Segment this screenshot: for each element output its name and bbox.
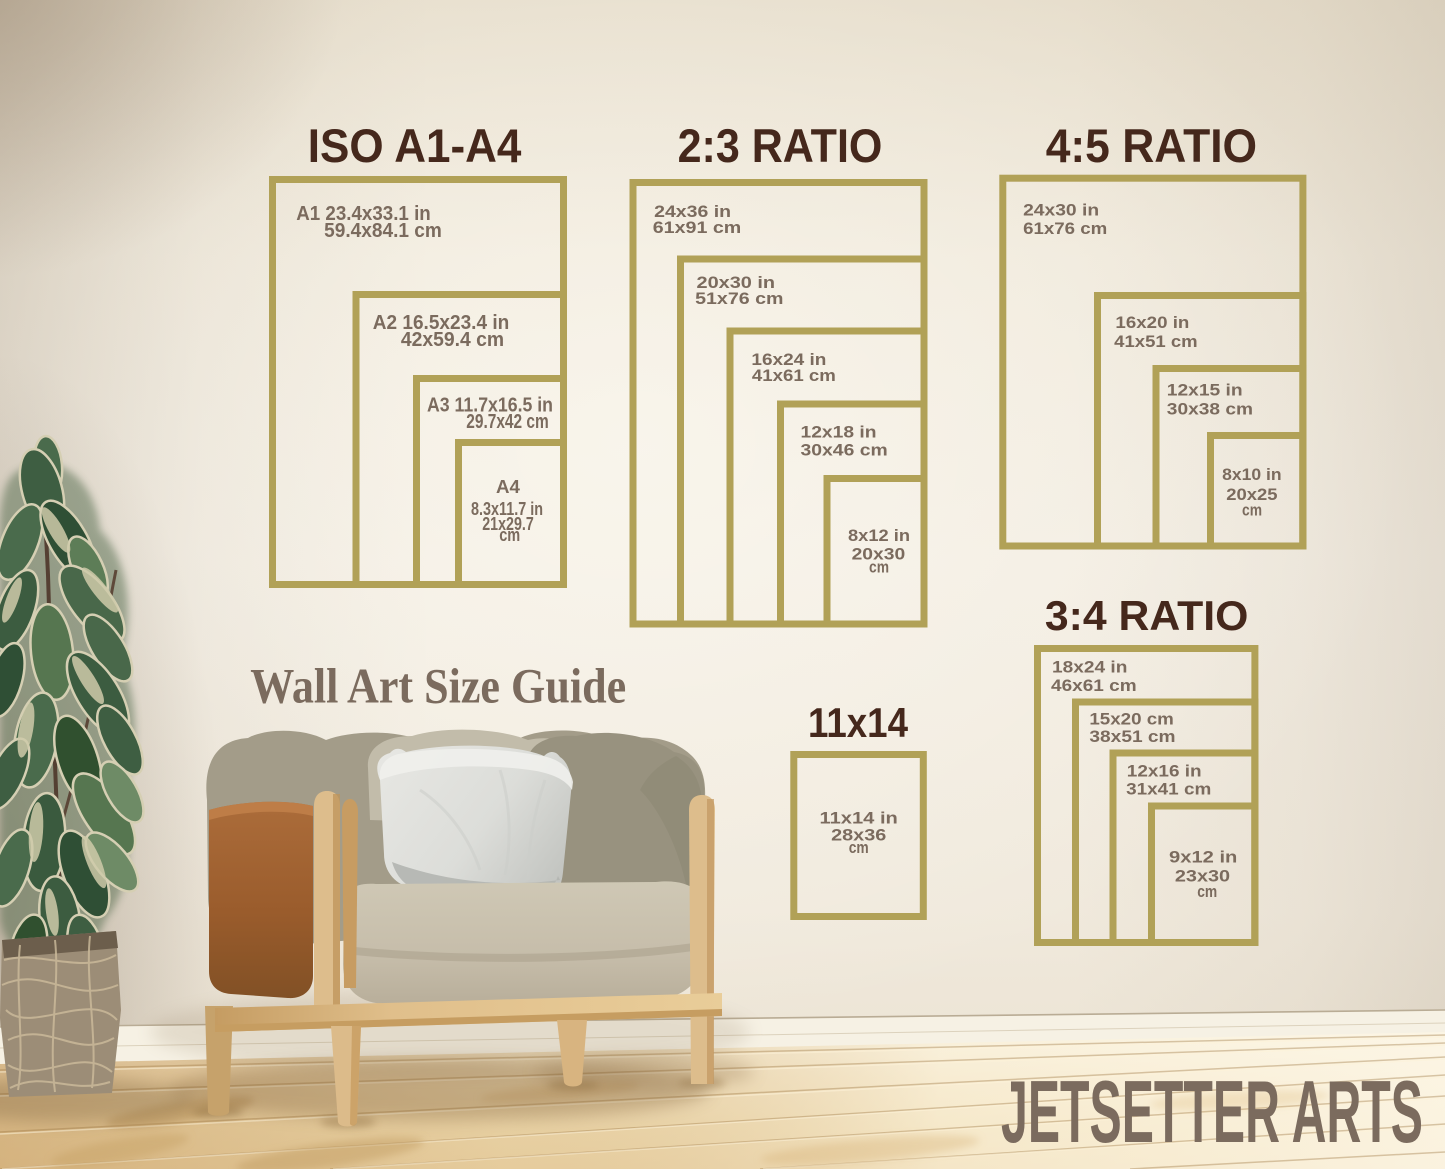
svg-text:cm: cm [1242,500,1262,519]
svg-text:3:4 RATIO: 3:4 RATIO [1045,592,1249,639]
svg-text:51x76 cm: 51x76 cm [695,289,783,308]
svg-text:cm: cm [499,525,520,545]
svg-text:59.4x84.1 cm: 59.4x84.1 cm [324,220,442,242]
svg-text:JETSETTER ARTS: JETSETTER ARTS [1001,1062,1423,1161]
svg-text:4:5 RATIO: 4:5 RATIO [1046,119,1257,172]
svg-text:61x91 cm: 61x91 cm [653,218,742,237]
svg-text:61x76 cm: 61x76 cm [1023,219,1107,238]
svg-text:29.7x42 cm: 29.7x42 cm [466,411,549,433]
svg-text:31x41 cm: 31x41 cm [1126,779,1211,798]
svg-text:41x51 cm: 41x51 cm [1114,332,1197,351]
svg-text:8x12 in: 8x12 in [848,526,910,545]
svg-text:9x12 in: 9x12 in [1169,848,1237,867]
svg-text:30x38 cm: 30x38 cm [1167,400,1253,419]
svg-text:42x59.4 cm: 42x59.4 cm [401,329,504,351]
svg-text:15x20 cm: 15x20 cm [1089,710,1174,729]
svg-text:cm: cm [1197,882,1217,901]
svg-text:8x10 in: 8x10 in [1222,465,1282,484]
svg-text:46x61 cm: 46x61 cm [1051,676,1137,695]
svg-text:24x30 in: 24x30 in [1023,201,1099,220]
svg-text:11x14: 11x14 [808,699,909,746]
svg-text:ISO A1-A4: ISO A1-A4 [308,119,522,172]
svg-text:18x24 in: 18x24 in [1052,658,1127,677]
svg-text:41x61 cm: 41x61 cm [752,366,836,385]
svg-text:2:3 RATIO: 2:3 RATIO [678,119,883,172]
svg-text:12x18 in: 12x18 in [801,423,877,442]
svg-text:30x46 cm: 30x46 cm [801,441,888,460]
svg-text:12x15 in: 12x15 in [1167,381,1243,400]
svg-text:Wall Art Size Guide: Wall Art Size Guide [250,658,626,714]
svg-text:cm: cm [869,557,889,576]
svg-text:A4: A4 [496,477,520,497]
svg-text:cm: cm [849,838,869,857]
svg-text:16x20 in: 16x20 in [1115,313,1189,332]
svg-text:38x51 cm: 38x51 cm [1089,727,1175,746]
svg-text:12x16 in: 12x16 in [1127,762,1202,781]
